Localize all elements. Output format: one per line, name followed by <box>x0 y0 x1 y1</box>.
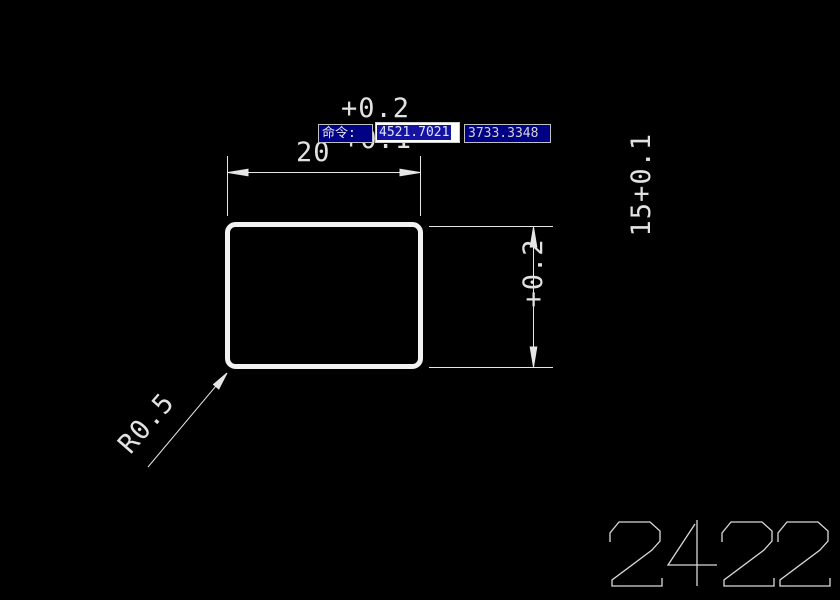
rectangle-shape[interactable] <box>228 225 421 367</box>
dim-width-value[interactable]: 20 <box>296 139 331 166</box>
coordinate-x-field[interactable]: 4521.7021 <box>375 122 460 143</box>
command-prompt-box[interactable]: 命令: <box>318 124 373 143</box>
coordinate-y-field[interactable]: 3733.3348 <box>464 124 551 143</box>
part-number-text[interactable] <box>610 520 830 586</box>
dim-width-upper-tolerance[interactable]: +0.2 <box>341 95 410 122</box>
dim-height-text[interactable]: +0.2 15+0.1 <box>466 133 736 340</box>
cad-canvas[interactable]: +0.2 +0.1 20 +0.2 15+0.1 R0.5 命令: 4521.7… <box>0 0 840 600</box>
dim-height-lower-tolerance: +0.1 <box>626 133 657 202</box>
coordinate-x-value: 4521.7021 <box>377 125 451 140</box>
dim-height-upper-tolerance: +0.2 <box>520 133 547 340</box>
dim-height-value: 15 <box>626 202 657 237</box>
